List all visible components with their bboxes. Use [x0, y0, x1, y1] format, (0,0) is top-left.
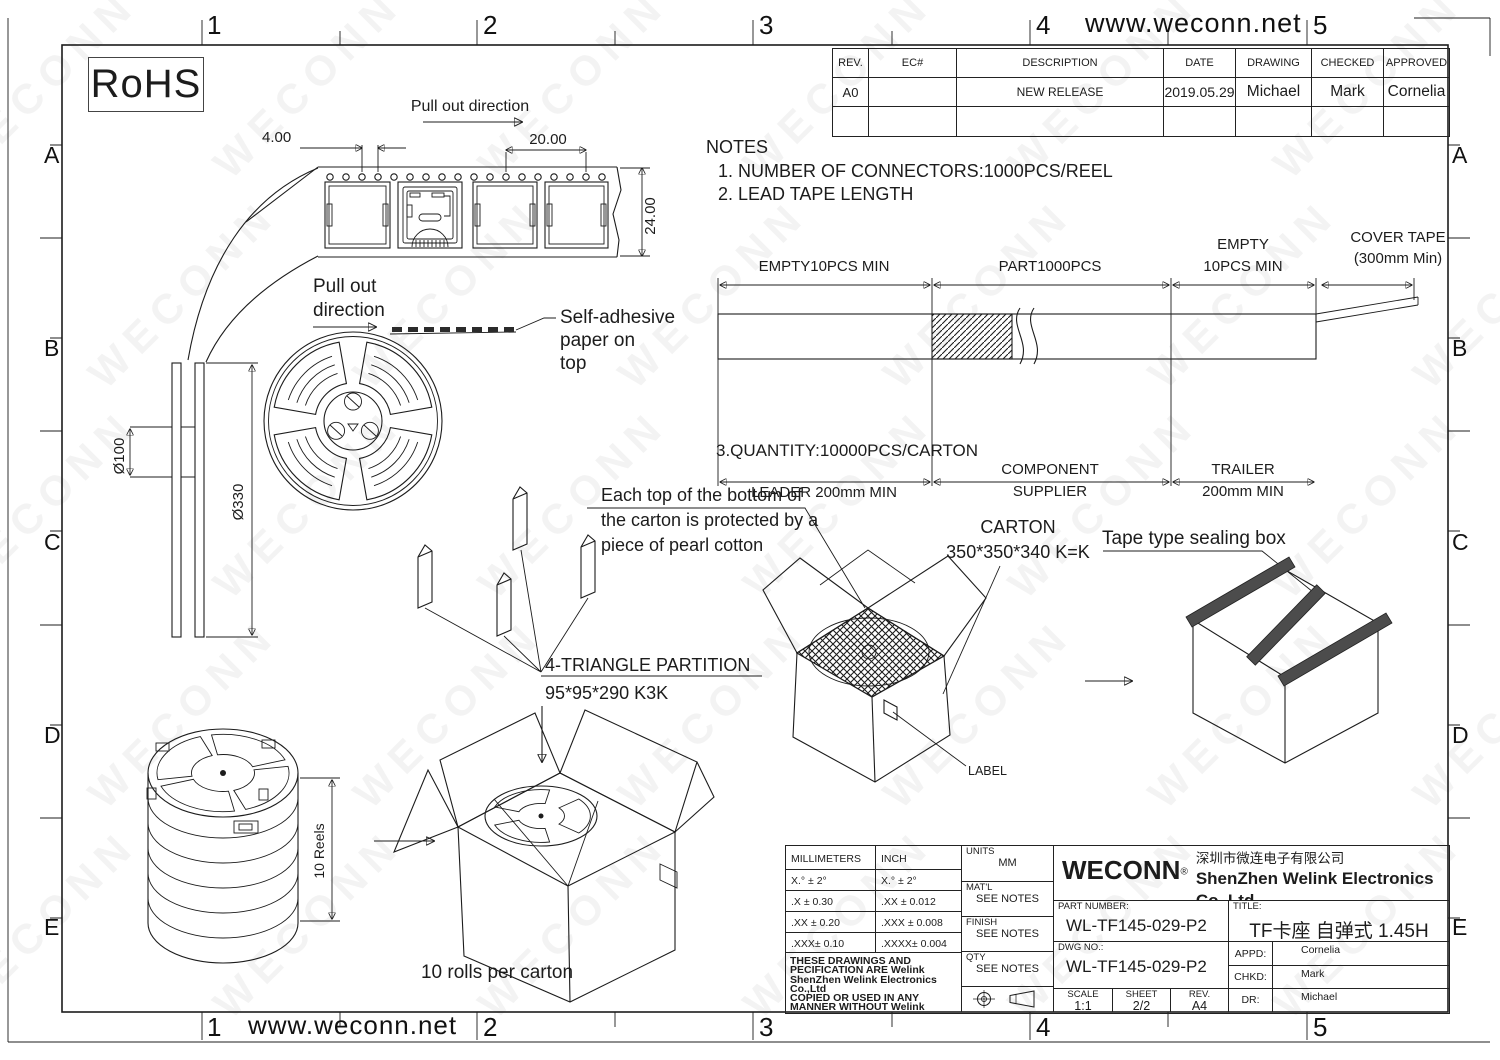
adhesive-paper: Self-adhesive paper on top	[390, 307, 675, 374]
rev-header-ec: EC#	[869, 49, 957, 78]
reel-outer-dia-label: Ø330	[230, 484, 247, 521]
legal-text: THESE DRAWINGS AND PECIFICATION ARE Weli…	[786, 953, 962, 1012]
notes-item-3: 3.QUANTITY:10000PCS/CARTON	[716, 441, 978, 460]
units-value: MM	[962, 857, 1053, 869]
pearl-note-1: Each top of the bottom of	[601, 485, 803, 505]
rev-header-date: DATE	[1164, 49, 1236, 78]
website-top: www.weconn.net	[1085, 8, 1302, 39]
company-cell: WECONN® 深圳市微连电子有限公司 ShenZhen Welink Elec…	[1054, 846, 1449, 901]
pull-out-direction-top-label: Pull out direction	[411, 98, 529, 115]
cover-tape-label-1: COVER TAPE	[1350, 229, 1445, 246]
rev-cell-approved: Cornelia	[1384, 78, 1449, 107]
qty-cell: QTY SEE NOTES	[962, 952, 1054, 987]
partition-label-2: 95*95*290 K3K	[545, 683, 668, 703]
sheet-cell: SHEET 2/2	[1113, 989, 1171, 1012]
dr-label: DR:	[1229, 989, 1273, 1012]
carton-label-2: 350*350*340 K=K	[946, 542, 1090, 562]
open-carton-drawing: LABEL	[763, 550, 1007, 782]
units-cell: UNITS MM	[962, 846, 1054, 882]
title-block: MILLIMETERS INCH X.° ± 2° X.° ± 2° .X ± …	[785, 845, 1450, 1014]
adhesive-label-1: Self-adhesive	[560, 307, 675, 328]
rev-cell-date: 2019.05.29	[1164, 78, 1236, 107]
empty-right-label-2: 10PCS MIN	[1203, 258, 1282, 275]
tol-inch-3: .XXXX± 0.004	[876, 933, 962, 953]
box-with-reel-drawing: 10 rolls per carton	[394, 710, 714, 1002]
part-number-label: PART NUMBER:	[1054, 901, 1228, 912]
rev-header-description: DESCRIPTION	[957, 49, 1164, 78]
reel-side-view: Ø100 Ø330	[111, 363, 258, 637]
adhesive-label-2: paper on	[560, 330, 635, 351]
dwg-no-value: WL-TF145-029-P2	[1054, 953, 1228, 977]
tol-header-mm: MILLIMETERS	[786, 846, 876, 870]
dim-width-label: 24.00	[642, 197, 659, 235]
weconn-logo: WECONN	[1062, 855, 1180, 885]
empty-left-label: EMPTY10PCS MIN	[759, 258, 890, 275]
dim-width: 24.00	[620, 168, 659, 256]
part-number-value: WL-TF145-029-P2	[1054, 912, 1228, 936]
zone-col-top-2: 2	[483, 10, 497, 41]
reel-front-view	[264, 332, 442, 510]
zone-col-top-5: 5	[1313, 10, 1327, 41]
finish-value: SEE NOTES	[962, 928, 1053, 940]
notes-title: NOTES	[706, 137, 768, 157]
title-cell: TITLE: TF卡座 自弹式 1.45H	[1229, 901, 1449, 942]
tol-mm-1: .X ± 0.30	[786, 891, 876, 912]
zone-col-bot-5: 5	[1313, 1012, 1327, 1043]
partition-label-1: 4-TRIANGLE PARTITION	[545, 655, 750, 675]
dwg-no-label: DWG NO.:	[1054, 942, 1228, 953]
dr-value: Michael	[1273, 989, 1449, 1012]
chkd-label: CHKD:	[1229, 966, 1273, 989]
rev-header-drawing: DRAWING	[1236, 49, 1312, 78]
rev-cell-rev: A0	[833, 78, 869, 107]
zone-row-right-c: C	[1452, 529, 1469, 556]
rev-cell-drawing: Michael	[1236, 78, 1312, 107]
scale-cell: SCALE 1:1	[1054, 989, 1113, 1012]
matl-value: SEE NOTES	[962, 893, 1053, 905]
tol-inch-1: .XX ± 0.012	[876, 891, 962, 912]
zone-col-bot-1: 1	[207, 1012, 221, 1043]
dim-pitch: 4.00	[262, 129, 406, 172]
tol-inch-angle: X.° ± 2°	[876, 870, 962, 891]
units-label: UNITS	[962, 846, 1053, 857]
part-label: PART1000PCS	[999, 258, 1102, 275]
zone-row-left-c: C	[44, 529, 61, 556]
notes-block: NOTES 1. NUMBER OF CONNECTORS:1000PCS/RE…	[706, 137, 1113, 460]
rev-cell-checked: Mark	[1312, 78, 1384, 107]
notes-item-1: 1. NUMBER OF CONNECTORS:1000PCS/REEL	[718, 161, 1113, 181]
reel-drawing: Pull out direction Self-adhesive paper o…	[111, 276, 675, 637]
zone-col-bot-2: 2	[483, 1012, 497, 1043]
rev-cell-description: NEW RELEASE	[957, 78, 1164, 107]
empty-right-label-1: EMPTY	[1217, 236, 1269, 253]
pull-out-label-1: Pull out	[313, 276, 377, 297]
legal-line-1: THESE DRAWINGS AND PECIFICATION ARE Weli…	[790, 957, 959, 976]
sprocket-holes	[327, 174, 605, 180]
company-logo: WECONN®	[1062, 850, 1188, 890]
rev-cell: REV. A4	[1171, 989, 1229, 1012]
zone-col-top-3: 3	[759, 10, 773, 41]
zone-row-right-b: B	[1452, 335, 1467, 362]
rev-cell-empty	[833, 107, 869, 136]
pull-out-label-2: direction	[313, 300, 385, 321]
rev-header-checked: CHECKED	[1312, 49, 1384, 78]
sheet-value: 2/2	[1133, 1000, 1150, 1012]
adhesive-label-3: top	[560, 353, 586, 374]
rev-cell-empty	[1164, 107, 1236, 136]
qty-value: SEE NOTES	[962, 963, 1053, 975]
tol-mm-2: .XX ± 0.20	[786, 912, 876, 933]
zone-row-right-a: A	[1452, 142, 1467, 169]
rev-header-approved: APPROVED	[1384, 49, 1449, 78]
supplier-label-2: SUPPLIER	[1013, 483, 1087, 500]
rev-cell-empty	[869, 107, 957, 136]
rev-value: A4	[1192, 1000, 1207, 1012]
trailer-label-2: 200mm MIN	[1202, 483, 1284, 500]
title-label: TITLE:	[1229, 901, 1449, 912]
zone-row-right-e: E	[1452, 914, 1467, 941]
revision-table: REV. EC# DESCRIPTION DATE DRAWING CHECKE…	[832, 48, 1450, 137]
rolls-per-carton-label: 10 rolls per carton	[421, 962, 573, 983]
zone-row-left-b: B	[44, 335, 59, 362]
zone-row-left-e: E	[44, 914, 59, 941]
rev-cell-ec	[869, 78, 957, 107]
pearl-note-3: piece of pearl cotton	[601, 535, 763, 555]
cover-tape-label-2: (300mm Min)	[1354, 250, 1442, 267]
legal-line-3: COPIED OR USED IN ANY MANNER WITHOUT Wel…	[790, 994, 959, 1011]
zone-col-bot-4: 4	[1036, 1012, 1050, 1043]
sealed-box-drawing: Tape type sealing box	[1102, 528, 1392, 763]
finish-label: FINISH	[962, 917, 1053, 928]
qty-label: QTY	[962, 952, 1053, 963]
appd-value: Cornelia	[1273, 942, 1449, 966]
rev-cell-empty	[1312, 107, 1384, 136]
tol-inch-2: .XXX ± 0.008	[876, 912, 962, 933]
zone-col-top-4: 4	[1036, 10, 1050, 41]
matl-cell: MAT'L SEE NOTES	[962, 882, 1054, 917]
tape-layout-diagram: EMPTY10PCS MIN PART1000PCS EMPTY 10PCS M…	[718, 229, 1446, 501]
tape-pockets	[325, 182, 608, 248]
zone-col-bot-3: 3	[759, 1012, 773, 1043]
carton-label-1: CARTON	[980, 517, 1055, 537]
dim-pitch-label: 4.00	[262, 129, 291, 146]
rev-cell-empty	[1384, 107, 1449, 136]
reel-stack-drawing: 10 Reels	[147, 729, 340, 963]
website-bottom: www.weconn.net	[248, 1010, 457, 1041]
tol-mm-3: .XXX± 0.10	[786, 933, 876, 953]
dwg-no-cell: DWG NO.: WL-TF145-029-P2	[1054, 942, 1229, 989]
dim-span-label: 20.00	[529, 131, 567, 148]
company-name-en: ShenZhen Welink Electronics Co.,Ltd	[1196, 868, 1445, 901]
carton-label-tag: LABEL	[968, 764, 1007, 778]
company-names: 深圳市微连电子有限公司 ShenZhen Welink Electronics …	[1196, 850, 1445, 901]
carton-label: CARTON 350*350*340 K=K	[943, 517, 1090, 694]
tol-mm-angle: X.° ± 2°	[786, 870, 876, 891]
company-name-cn: 深圳市微连电子有限公司	[1196, 850, 1445, 868]
dim-span: 20.00	[506, 131, 586, 172]
sealing-box-label: Tape type sealing box	[1102, 528, 1286, 549]
projection-symbol-cell	[962, 987, 1054, 1012]
part-number-cell: PART NUMBER: WL-TF145-029-P2	[1054, 901, 1229, 942]
supplier-label-1: COMPONENT	[1001, 461, 1099, 478]
pearl-note-2: the carton is protected by a	[601, 510, 819, 530]
third-angle-projection-icon	[966, 988, 1050, 1010]
zone-row-right-d: D	[1452, 722, 1469, 749]
drawing-sheet: WECONNWECONNWECONNWECONNWECONNWECONNWECO…	[0, 0, 1500, 1060]
tol-header-inch: INCH	[876, 846, 962, 870]
notes-item-2: 2. LEAD TAPE LENGTH	[718, 184, 913, 204]
reel-inner-dia-label: Ø100	[111, 438, 128, 475]
zone-col-top-1: 1	[207, 10, 221, 41]
rev-header-rev: REV.	[833, 49, 869, 78]
title-value: TF卡座 自弹式 1.45H	[1229, 912, 1449, 942]
zone-row-left-a: A	[44, 142, 59, 169]
registered-mark: ®	[1180, 867, 1187, 878]
pearl-cotton-note: Each top of the bottom of the carton is …	[587, 485, 865, 608]
finish-cell: FINISH SEE NOTES	[962, 917, 1054, 952]
rohs-mark: RoHS	[88, 57, 204, 112]
tf-connector-in-pocket	[398, 182, 462, 248]
matl-label: MAT'L	[962, 882, 1053, 893]
chkd-value: Mark	[1273, 966, 1449, 989]
trailer-label-1: TRAILER	[1211, 461, 1275, 478]
rev-cell-empty	[1236, 107, 1312, 136]
appd-label: APPD:	[1229, 942, 1273, 966]
scale-value: 1:1	[1074, 1000, 1091, 1012]
zone-row-left-d: D	[44, 722, 61, 749]
rev-cell-empty	[957, 107, 1164, 136]
reels-count-label: 10 Reels	[311, 823, 327, 878]
